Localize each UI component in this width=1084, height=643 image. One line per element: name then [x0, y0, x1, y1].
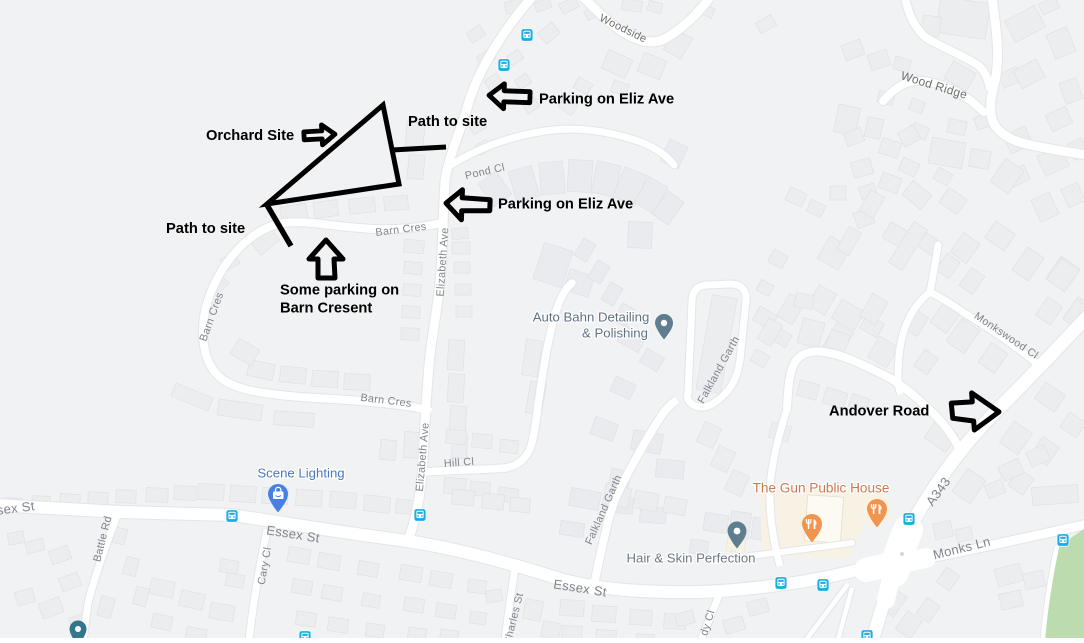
svg-text:Parking on Eliz Ave: Parking on Eliz Ave: [539, 92, 674, 108]
svg-text:Auto Bahn Detailing: Auto Bahn Detailing: [533, 309, 650, 324]
svg-text:Some parking on: Some parking on: [280, 283, 399, 299]
svg-text:Scene Lighting: Scene Lighting: [257, 465, 344, 480]
svg-text:Hill Cl: Hill Cl: [443, 456, 474, 470]
svg-text:Path to site: Path to site: [166, 221, 245, 237]
svg-text:& Polishing: & Polishing: [582, 325, 648, 340]
svg-text:Andover Road: Andover Road: [829, 404, 929, 420]
svg-text:Orchard Site: Orchard Site: [206, 128, 294, 144]
svg-text:Barn Cresent: Barn Cresent: [280, 301, 372, 317]
svg-text:Parking on Eliz Ave: Parking on Eliz Ave: [498, 197, 633, 213]
svg-text:The Gun Public House: The Gun Public House: [753, 481, 890, 496]
svg-text:Path to site: Path to site: [408, 114, 487, 130]
svg-text:Hair & Skin Perfection: Hair & Skin Perfection: [627, 550, 756, 565]
